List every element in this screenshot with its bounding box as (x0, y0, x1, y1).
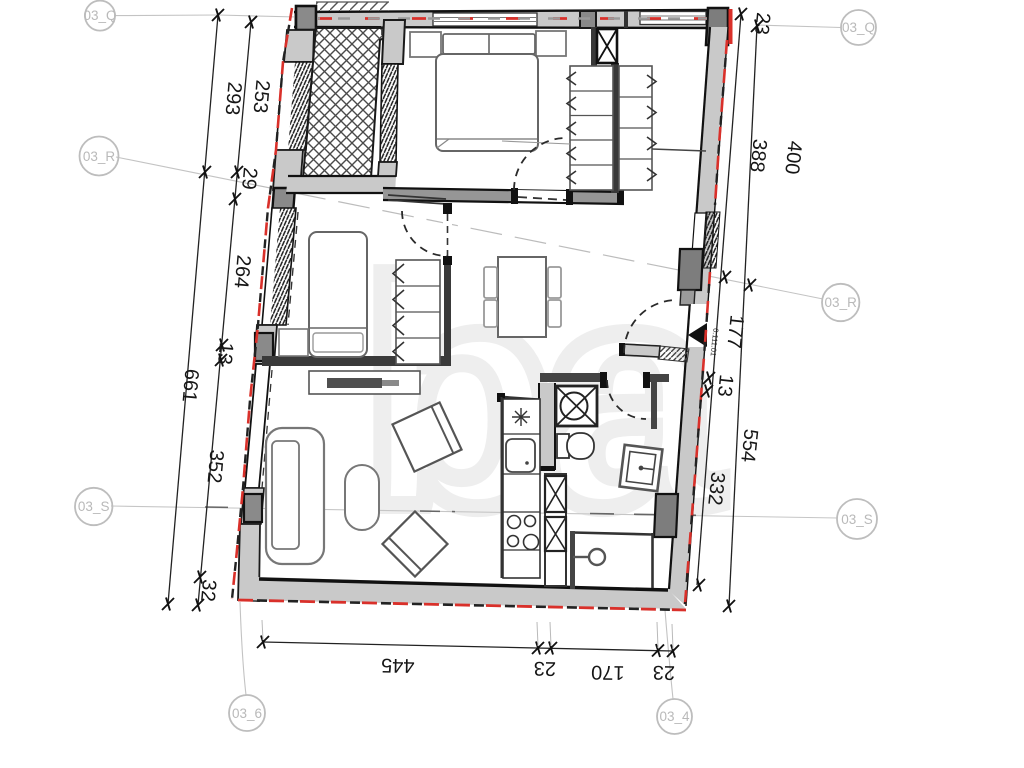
svg-text:03_4: 03_4 (659, 709, 690, 724)
svg-text:23: 23 (653, 661, 676, 683)
svg-text:264: 264 (230, 254, 255, 289)
svg-text:293: 293 (221, 81, 246, 116)
svg-text:661: 661 (178, 368, 203, 403)
svg-text:388: 388 (745, 138, 770, 173)
svg-text:03_R: 03_R (83, 149, 116, 164)
svg-text:445: 445 (381, 654, 415, 677)
svg-text:32: 32 (196, 578, 220, 602)
svg-text:332: 332 (703, 471, 728, 506)
svg-text:170: 170 (591, 661, 625, 684)
svg-text:253: 253 (249, 79, 274, 114)
svg-text:03_R: 03_R (825, 295, 858, 310)
svg-text:03_Q: 03_Q (842, 20, 875, 35)
svg-text:03_Q: 03_Q (83, 8, 116, 23)
svg-text:400: 400 (780, 140, 805, 175)
svg-text:352: 352 (203, 449, 228, 484)
svg-text:29: 29 (237, 166, 261, 190)
svg-text:554: 554 (736, 428, 761, 463)
svg-text:177: 177 (722, 314, 747, 349)
svg-text:23: 23 (750, 11, 774, 35)
svg-text:03_S: 03_S (78, 499, 110, 514)
svg-text:13: 13 (213, 341, 237, 365)
svg-text:23: 23 (534, 657, 557, 679)
svg-text:13: 13 (713, 373, 737, 397)
svg-text:03_6: 03_6 (232, 706, 262, 721)
svg-text:03_S: 03_S (841, 512, 873, 527)
